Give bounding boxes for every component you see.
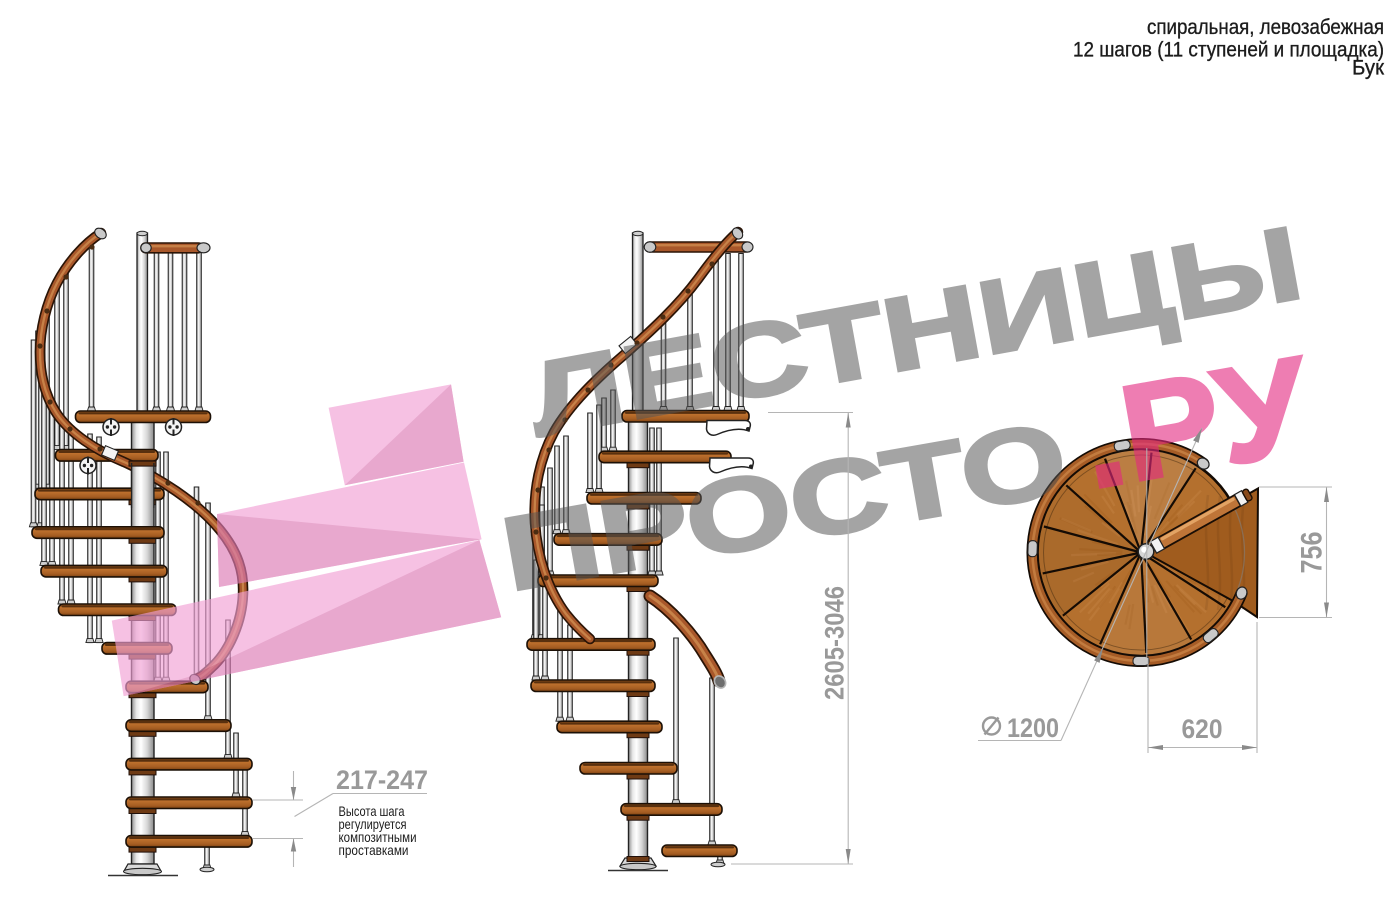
svg-text:12 шагов (11 ступеней и площад: 12 шагов (11 ступеней и площадка) <box>1073 38 1384 62</box>
svg-text:217-247: 217-247 <box>336 765 428 795</box>
svg-text:2605-3046: 2605-3046 <box>820 586 850 700</box>
svg-text:620: 620 <box>1182 714 1223 744</box>
svg-text:спиральная, левозабежная: спиральная, левозабежная <box>1147 15 1384 39</box>
svg-text:Бук: Бук <box>1352 56 1385 80</box>
svg-text:проставками: проставками <box>339 843 409 858</box>
svg-text:756: 756 <box>1296 532 1329 574</box>
svg-text:1200: 1200 <box>1007 713 1059 743</box>
